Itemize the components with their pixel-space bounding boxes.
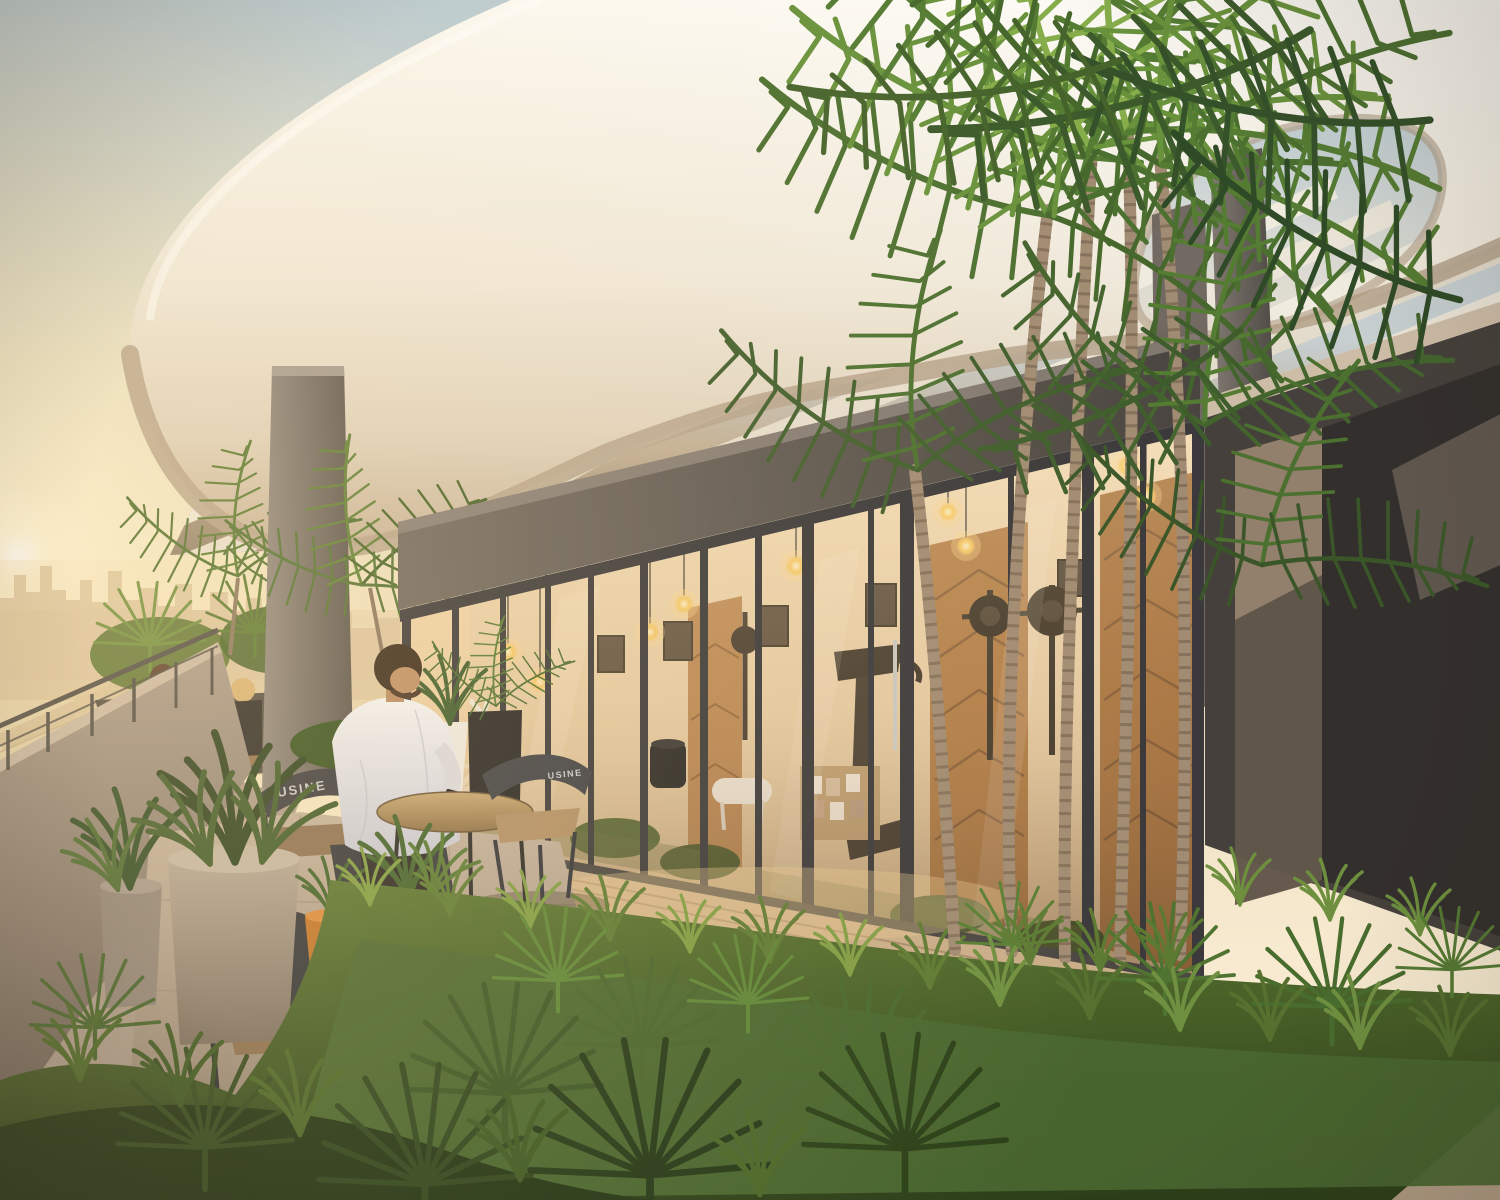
scene-svg: USINE USINE bbox=[0, 0, 1500, 1200]
rendering-canvas: USINE USINE bbox=[0, 0, 1500, 1200]
vignette bbox=[0, 0, 1500, 1200]
